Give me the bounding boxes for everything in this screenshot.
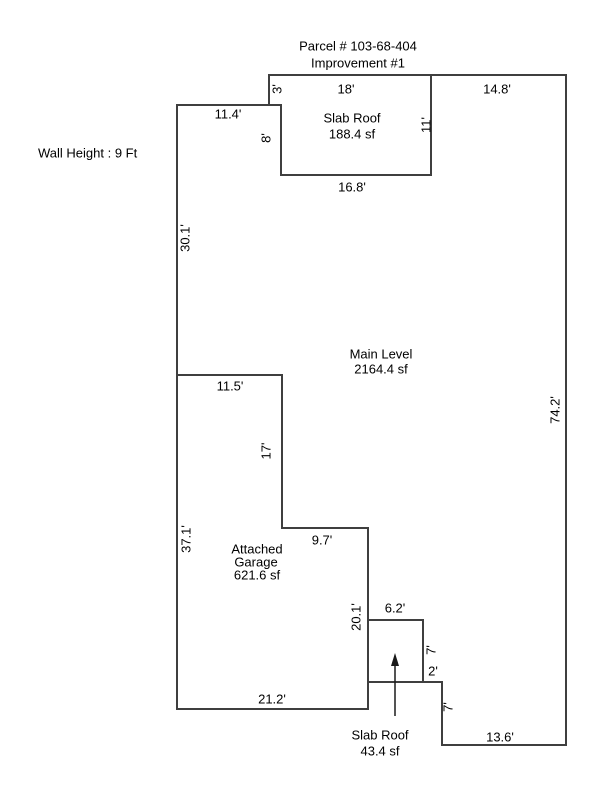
dim-slab-left-height: 8' — [259, 133, 274, 143]
dim-porch-step-width: 2' — [428, 664, 438, 679]
dim-right-side-height: 74.2' — [548, 396, 563, 424]
dim-left-upper-height: 30.1' — [178, 224, 193, 252]
wall-height-label: Wall Height : 9 Ft — [38, 146, 138, 161]
slab-roof-bottom-name: Slab Roof — [351, 728, 408, 743]
main-level-area: 2164.4 sf — [354, 362, 408, 377]
improvement-title: Improvement #1 — [311, 56, 405, 71]
arrow-head-icon — [391, 653, 399, 666]
building-outline — [176, 74, 567, 746]
slab-roof-bottom-area: 43.4 sf — [360, 744, 399, 759]
dim-garage-right-height: 20.1' — [349, 603, 364, 631]
dim-slab-right-height: 11' — [419, 117, 434, 133]
dim-upper-left-width: 11.4' — [215, 107, 242, 122]
dim-left-lower-height: 37.1' — [179, 525, 194, 553]
garage-area: 621.6 sf — [234, 568, 281, 583]
parcel-title: Parcel # 103-68-404 — [299, 39, 417, 54]
dim-top-right-width: 14.8' — [483, 82, 511, 97]
dim-garage-top-width: 11.5' — [217, 379, 244, 394]
dim-porch-top-width: 6.2' — [385, 601, 406, 616]
main-level-name: Main Level — [350, 347, 413, 362]
slab-roof-top-area: 188.4 sf — [329, 127, 376, 142]
dim-top-slab-width: 18' — [338, 82, 355, 97]
property-sketch-canvas: Parcel # 103-68-404 Improvement #1 Wall … — [0, 0, 600, 800]
slab-roof-pointer-arrow — [391, 653, 399, 716]
property-sketch-page: Parcel # 103-68-404 Improvement #1 Wall … — [0, 0, 600, 800]
slab-roof-top-name: Slab Roof — [323, 111, 380, 126]
dim-porch-right-height: 7' — [424, 645, 439, 655]
dim-lower-right-step-height: 7' — [441, 702, 456, 712]
dim-garage-step-width: 9.7' — [312, 533, 333, 548]
dim-slab-bottom-width: 16.8' — [338, 180, 366, 195]
dim-garage-bottom-width: 21.2' — [258, 692, 286, 707]
dim-top-notch-height: 3' — [270, 84, 285, 94]
dim-garage-inner-height: 17' — [259, 443, 274, 460]
dim-bottom-right-width: 13.6' — [486, 730, 514, 745]
